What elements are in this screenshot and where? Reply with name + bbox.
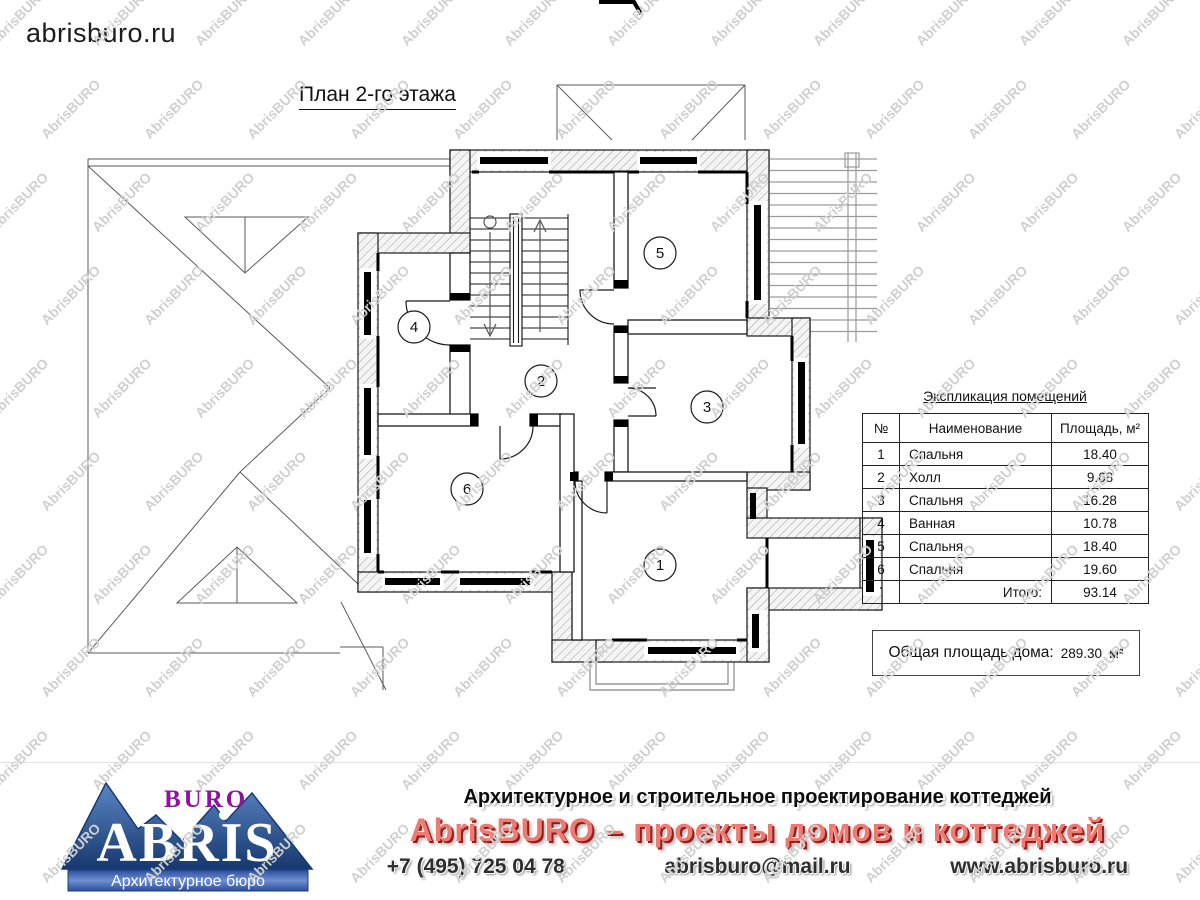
room-legend: Экспликация помещений № Наименование Пло… (862, 388, 1148, 604)
room-badge-2: 2 (525, 365, 557, 397)
svg-text:3: 3 (703, 399, 711, 416)
site-brand[interactable]: abrisburo.ru (26, 18, 176, 49)
total-label: Итого: (900, 581, 1052, 604)
page: AbrisBUROAbrisBUROAbrisBUROAbrisBUROAbri… (0, 0, 1200, 900)
room-badge-3: 3 (691, 391, 723, 423)
room-badge-1: 1 (644, 549, 676, 581)
svg-text:1: 1 (656, 557, 664, 574)
table-row: 6Спальня19.60 (863, 558, 1149, 581)
logo-buro-text: BURO (164, 786, 248, 813)
legend-table: № Наименование Площадь, м² 1Спальня18.40… (862, 413, 1149, 604)
logo-tagline: Архитектурное бюро (111, 873, 265, 890)
table-row: 5Спальня18.40 (863, 535, 1149, 558)
footer-contacts: +7 (495) 725 04 78 abrisburo@mail.ru www… (335, 855, 1180, 879)
total-area-label: Общая площадь дома: (888, 644, 1053, 662)
col-header-num: № (863, 414, 900, 443)
balcony-outline (590, 662, 734, 690)
footer-slogan: Архитектурное и строительное проектирова… (335, 786, 1180, 809)
table-row: 2Холл9.68 (863, 466, 1149, 489)
table-total-row: Итого: 93.14 (863, 581, 1149, 604)
footer-website[interactable]: www.abrisburo.ru (898, 855, 1180, 879)
room-badge-4: 4 (398, 311, 430, 343)
svg-text:5: 5 (656, 245, 664, 262)
scan-artifact-mark (599, 2, 641, 14)
total-area-unit: м² (1109, 646, 1123, 661)
svg-text:2: 2 (537, 373, 545, 390)
col-header-area: Площадь, м² (1052, 414, 1149, 443)
legend-header-row: № Наименование Площадь, м² (863, 414, 1149, 443)
table-row: 3Спальня16.28 (863, 489, 1149, 512)
abris-logo[interactable]: BURO ABRIS Архитектурное бюро (56, 771, 318, 893)
legend-title: Экспликация помещений (862, 388, 1148, 404)
svg-text:4: 4 (410, 319, 418, 336)
footer: BURO ABRIS Архитектурное бюро Архитектур… (0, 762, 1200, 900)
footer-phone: +7 (495) 725 04 78 (335, 855, 617, 879)
table-row: 1Спальня18.40 (863, 443, 1149, 466)
total-value: 93.14 (1052, 581, 1149, 604)
room-badge-6: 6 (451, 473, 483, 505)
footer-headline: AbrisBURO – проекты домов и коттеджей (335, 812, 1180, 849)
staircase (470, 214, 568, 346)
table-row: 4Ванная10.78 (863, 512, 1149, 535)
total-area-value: 289.30 (1061, 646, 1102, 661)
total-area-box: Общая площадь дома: 289.30 м² (872, 630, 1140, 676)
room-badge-5: 5 (644, 237, 676, 269)
svg-text:6: 6 (463, 481, 471, 498)
top-roof-outline (557, 85, 745, 140)
page-title: План 2-го этажа (299, 83, 456, 110)
footer-email[interactable]: abrisburo@mail.ru (617, 855, 899, 879)
col-header-name: Наименование (900, 414, 1052, 443)
pergola-lines (770, 153, 877, 342)
logo-abris-text: ABRIS (96, 812, 277, 874)
